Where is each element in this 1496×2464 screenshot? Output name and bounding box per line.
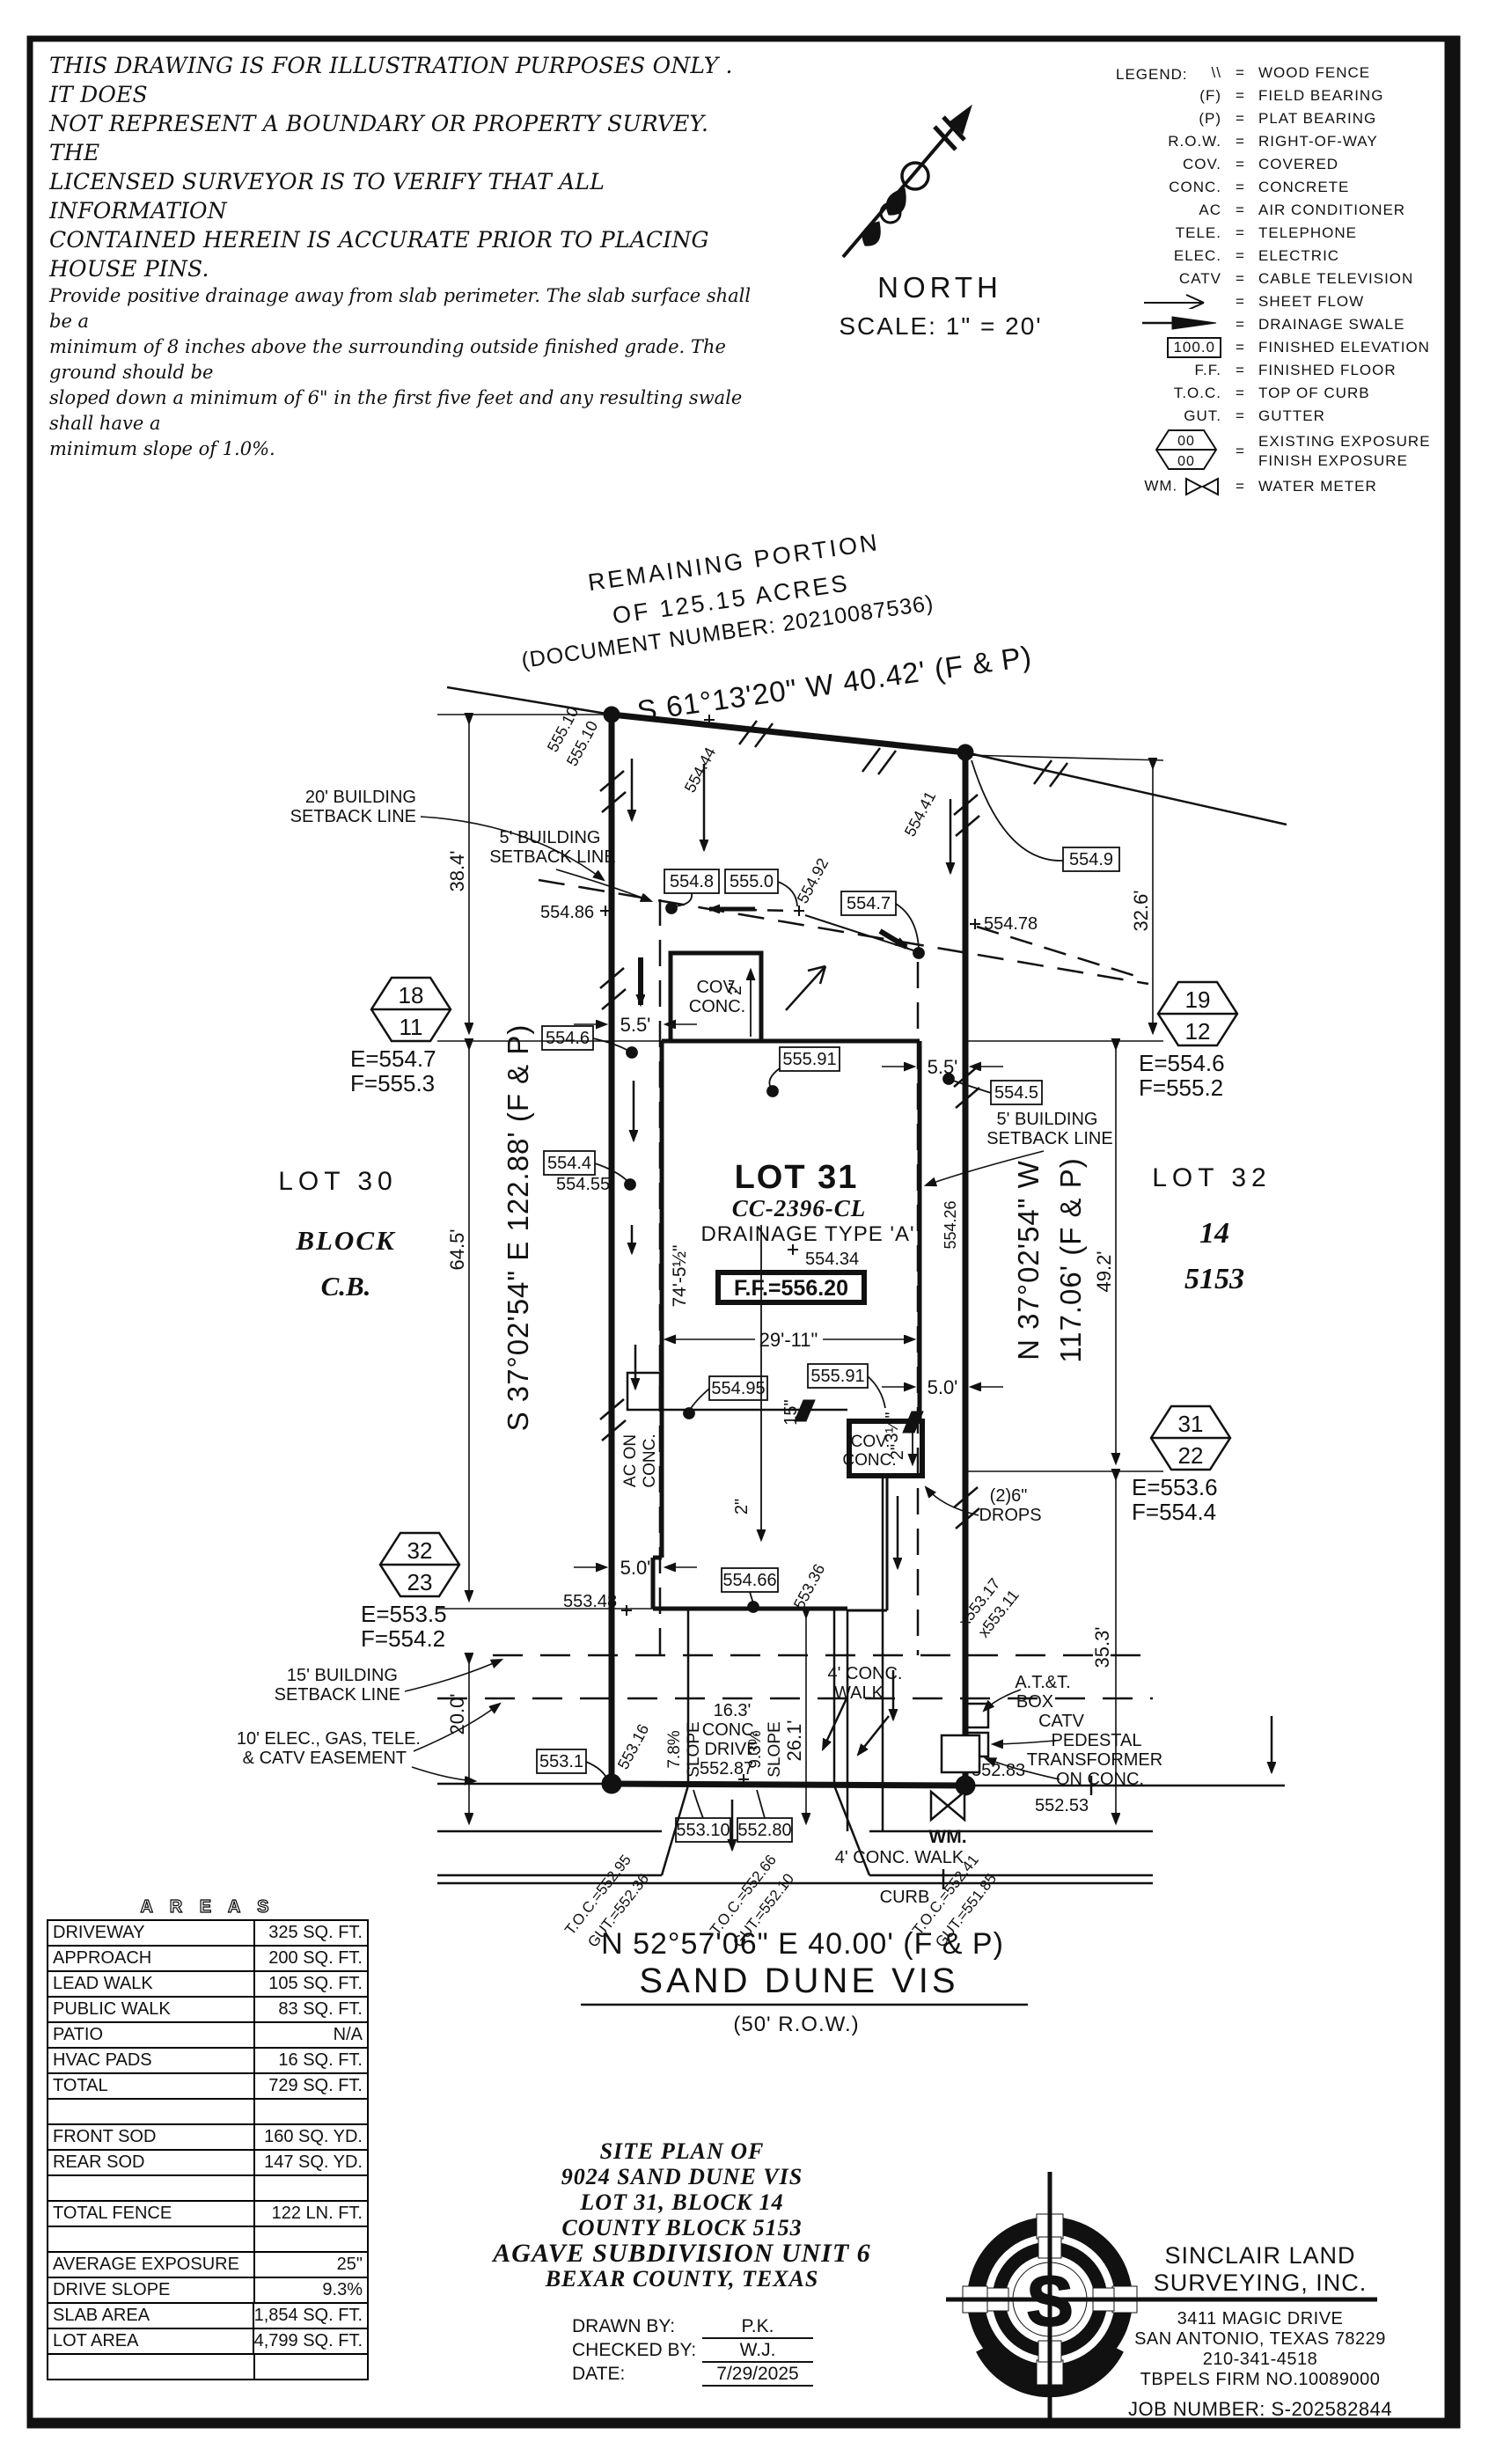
legend-desc: COVERED [1258, 156, 1459, 173]
lot32-cb: 5153 [1184, 1263, 1244, 1295]
ac-on-conc-1: AC ON [621, 1434, 640, 1487]
legend-desc: CABLE TELEVISION [1258, 270, 1459, 288]
easement-line1: 10' ELEC., GAS, TELE. [237, 1729, 421, 1749]
dim-74-5: 74'-5½" [670, 1244, 690, 1307]
drainage-note-line: Provide positive drainage away from slab… [49, 283, 762, 334]
legend-desc: FIELD BEARING [1258, 87, 1459, 105]
lot32-label: LOT 32 [1152, 1163, 1272, 1192]
row-width: (50' R.O.W.) [733, 2013, 859, 2036]
lot31-drainage: DRAINAGE TYPE 'A' [700, 1222, 914, 1246]
company-address: 3411 MAGIC DRIVE [1128, 2309, 1392, 2329]
disclaimer-note: THIS DRAWING IS FOR ILLUSTRATION PURPOSE… [49, 51, 762, 462]
legend-desc: DRAINAGE SWALE [1258, 316, 1459, 334]
cov-conc-rear-1: COV. [696, 978, 737, 997]
company-address: SAN ANTONIO, TEXAS 78229 [1128, 2329, 1392, 2350]
bearing-right-2: 117.06' (F & P) [1054, 1157, 1087, 1362]
hex32-e: E=553.5 [361, 1601, 447, 1627]
hex19-bot: 12 [1185, 1018, 1211, 1045]
spot-553-36: 553.36 [790, 1561, 829, 1612]
hex19-top: 19 [1185, 986, 1211, 1013]
lot30-block: BLOCK [295, 1225, 396, 1256]
table-row: LEAD WALK105 SQ. FT. [47, 1972, 369, 1998]
walk-label-lower: 4' CONC. WALK [835, 1848, 964, 1867]
legend-desc: EXISTING EXPOSURE [1258, 432, 1459, 451]
bearing-right-1: N 37°02'54" W [1012, 1160, 1045, 1360]
table-row: LOT AREA4,799 SQ. FT. [47, 2329, 369, 2355]
exposure-hexagon-icon: 0000 [1111, 426, 1221, 478]
slope-93-word: SLOPE [766, 1721, 784, 1777]
company-phone: 210-341-4518 [1128, 2350, 1392, 2370]
lot30-cb: C.B. [321, 1271, 371, 1302]
slope-78-word: SLOPE [685, 1721, 703, 1777]
legend-desc: GUTTER [1258, 407, 1459, 425]
legend-desc: AIR CONDITIONER [1258, 202, 1459, 219]
slope-78: 7.8% [665, 1730, 684, 1768]
disclaimer-line: THIS DRAWING IS FOR ILLUSTRATION PURPOSE… [49, 51, 762, 109]
areas-title: A R E A S [47, 1897, 369, 1919]
ac-on-conc-2: CONC. [641, 1434, 659, 1487]
legend-symbol: TELE. [1111, 224, 1221, 242]
legend-title: LEGEND: [1116, 66, 1188, 84]
hex32-f: F=554.2 [361, 1625, 445, 1652]
curb-label: CURB [880, 1888, 930, 1907]
hex32-top: 32 [407, 1537, 433, 1564]
dim-5-5-right: 5.5' [928, 1056, 958, 1078]
dim-5-0-right: 5.0' [928, 1376, 958, 1398]
spot-552-53: 552.53 [1035, 1796, 1089, 1815]
dim-49-2: 49.2' [1093, 1250, 1115, 1292]
dim-5-5-left: 5.5' [620, 1014, 651, 1036]
att-box-1: A.T.&T. [1015, 1673, 1070, 1692]
sb20-line2: SETBACK LINE [290, 807, 416, 826]
hex18-f: F=555.3 [350, 1070, 435, 1096]
legend-desc: FINISHED ELEVATION [1258, 339, 1459, 356]
logo-letter: S [1026, 2262, 1073, 2340]
legend-desc: WOOD FENCE [1258, 64, 1459, 82]
finished-floor: F.F.=556.20 [734, 1276, 848, 1301]
lot32-block: 14 [1199, 1217, 1229, 1250]
hex31-top: 31 [1178, 1411, 1204, 1437]
hex19-e: E=554.6 [1139, 1050, 1225, 1076]
svg-text:00: 00 [1177, 434, 1195, 449]
transformer-label: TRANSFORMER [1027, 1750, 1162, 1770]
survey-sheet: NORTH SCALE: 1" = 20' REMAINING PORTION … [0, 0, 1496, 2464]
cov-conc-porch-2: CONC. [842, 1451, 896, 1470]
title-line: 9024 SAND DUNE VIS [475, 2164, 889, 2189]
title-line: AGAVE SUBDIVISION UNIT 6 [475, 2240, 889, 2266]
catv-label: CATV [1038, 1712, 1085, 1731]
hex18-bot: 11 [400, 1014, 423, 1040]
legend-desc: ELECTRIC [1258, 247, 1459, 265]
cov-conc-porch-1: COV. [851, 1433, 891, 1451]
spot-553-48: 553.48 [563, 1592, 617, 1611]
north-arrow-icon: NORTH SCALE: 1" = 20' [839, 106, 1042, 340]
legend-desc: WATER METER [1258, 478, 1459, 495]
el-554-95: 554.95 [711, 1379, 765, 1398]
legend-symbol: (F) [1111, 87, 1221, 105]
spot-554-41: 554.41 [901, 788, 940, 840]
spot-554-26: 554.26 [942, 1200, 959, 1249]
table-row [47, 2227, 369, 2253]
legend-desc: RIGHT-OF-WAY [1258, 133, 1459, 150]
legend-desc: CONCRETE [1258, 179, 1459, 196]
table-row: TOTAL729 SQ. FT. [47, 2074, 369, 2100]
north-label: NORTH [877, 271, 1002, 304]
spot-554-34: 554.34 [805, 1250, 859, 1269]
sb5-right-line1: 5' BUILDING [997, 1110, 1098, 1129]
areas-table: A R E A S DRIVEWAY325 SQ. FT. APPROACH20… [47, 1897, 369, 2380]
drawn-by-block: DRAWN BY:P.K. CHECKED BY:W.J. DATE:7/29/… [572, 2316, 813, 2387]
title-line: BEXAR COUNTY, TEXAS [475, 2266, 889, 2292]
checked-by-label: CHECKED BY: [572, 2340, 702, 2361]
legend-symbol: GUT. [1111, 407, 1221, 425]
lot31-cc: CC-2396-CL [732, 1195, 867, 1221]
remaining-portion-note: REMAINING PORTION OF 125.15 ACRES (DOCUM… [520, 529, 1034, 727]
el-552-80: 552.80 [737, 1821, 791, 1840]
sheet-flow-arrow-icon [1111, 291, 1221, 313]
drawn-by-value: P.K. [702, 2316, 813, 2339]
dim-64-5: 64.5' [446, 1228, 468, 1270]
legend-desc: TELEPHONE [1258, 224, 1459, 242]
hex19-f: F=555.2 [1139, 1074, 1223, 1101]
dim-26-1: 26.1' [783, 1720, 805, 1761]
walk-label-upper-2: WALK [834, 1683, 884, 1703]
spot-552-87: 552.87 [700, 1759, 753, 1778]
spot-554-55: 554.55 [556, 1175, 610, 1194]
legend-symbol: R.O.W. [1111, 133, 1221, 150]
street-name: SAND DUNE VIS [639, 1962, 958, 2000]
checked-by-value: W.J. [702, 2340, 813, 2363]
date-value: 7/29/2025 [702, 2364, 813, 2387]
dim-32-6: 32.6' [1130, 890, 1152, 931]
el-554-7: 554.7 [847, 894, 891, 913]
legend-symbol: F.F. [1111, 362, 1221, 379]
water-meter-icon: WM. [1111, 476, 1221, 497]
spot-554-44: 554.44 [681, 744, 720, 796]
legend-desc: PLAT BEARING [1258, 110, 1459, 128]
dim-29-11: 29'-11" [759, 1329, 818, 1351]
el-554-4: 554.4 [547, 1154, 591, 1173]
legend-symbol: (P) [1111, 110, 1221, 128]
legend-symbol: CATV [1111, 270, 1221, 288]
table-row: REAR SOD147 SQ. YD. [47, 2151, 369, 2176]
title-line: COUNTY BLOCK 5153 [475, 2215, 889, 2240]
table-row: DRIVEWAY325 SQ. FT. [47, 1919, 369, 1947]
el-554-8: 554.8 [670, 872, 714, 891]
job-number: JOB NUMBER: S-202582844 [1128, 2398, 1392, 2421]
table-row [47, 2176, 369, 2202]
table-row: PUBLIC WALK83 SQ. FT. [47, 1998, 369, 2023]
drive-1: 16.3' [714, 1701, 752, 1720]
on-conc-label: ON CONC. [1056, 1770, 1144, 1789]
sb15-line1: 15' BUILDING [287, 1666, 398, 1685]
sb5-left-line1: 5' BUILDING [500, 828, 601, 847]
legend-desc: SHEET FLOW [1258, 293, 1459, 311]
spot-553-16: 553.16 [614, 1721, 653, 1772]
el-554-66: 554.66 [722, 1571, 776, 1590]
easement-line2: & CATV EASEMENT [243, 1749, 407, 1768]
disclaimer-line: NOT REPRESENT A BOUNDARY OR PROPERTY SUR… [49, 109, 762, 167]
scale-label: SCALE: 1" = 20' [839, 312, 1042, 340]
el-553-10: 553.10 [676, 1821, 730, 1840]
bearing-left: S 37°02'54" E 122.88' (F & P) [502, 1024, 534, 1432]
lot-labels: LOT 30 BLOCK C.B. LOT 31 CC-2396-CL DRAI… [278, 1159, 1272, 1302]
title-line: SITE PLAN OF [475, 2138, 889, 2164]
hex32-bot: 23 [407, 1569, 433, 1595]
table-row [47, 2100, 369, 2125]
spot-554-78: 554.78 [984, 914, 1038, 934]
hex18-e: E=554.7 [350, 1045, 436, 1072]
date-label: DATE: [572, 2364, 702, 2385]
hex18-top: 18 [399, 982, 424, 1008]
table-row: HVAC PADS16 SQ. FT. [47, 2049, 369, 2074]
finished-elevation-symbol: 100.0 [1167, 337, 1221, 358]
drops-1: (2)6" [990, 1486, 1028, 1506]
cov-conc-rear-2: CONC. [689, 997, 745, 1016]
dim-20-0: 20.0' [446, 1693, 468, 1734]
pedestal-label: PEDESTAL [1052, 1731, 1142, 1750]
disclaimer-line: LICENSED SURVEYOR IS TO VERIFY THAT ALL … [49, 167, 762, 225]
company-name: SURVEYING, INC. [1128, 2270, 1392, 2297]
title-block: SITE PLAN OF 9024 SAND DUNE VIS LOT 31, … [475, 2138, 889, 2292]
exposure-hexagons: 18 11 E=554.7 F=555.3 19 12 E=554.6 F=55… [350, 978, 1237, 1652]
water-meter-label: WM. [928, 1827, 966, 1847]
table-row: APPROACH200 SQ. FT. [47, 1947, 369, 1972]
lot31-label: LOT 31 [735, 1159, 859, 1196]
drainage-note-line: sloped down a minimum of 6" in the first… [49, 385, 762, 436]
table-row: DRIVE SLOPE9.3% [47, 2278, 369, 2304]
sb20-line1: 20' BUILDING [305, 788, 416, 807]
el-554-6: 554.6 [546, 1029, 590, 1048]
table-row: TOTAL FENCE122 LN. FT. [47, 2202, 369, 2227]
legend-symbol: COV. [1111, 156, 1221, 173]
legend-desc: TOP OF CURB [1258, 385, 1459, 402]
drainage-swale-arrow-icon [1111, 315, 1221, 335]
spot-554-86: 554.86 [540, 903, 594, 922]
slope-93: 9.3% [746, 1730, 765, 1768]
table-row [47, 2355, 369, 2380]
table-row: FRONT SOD160 SQ. YD. [47, 2125, 369, 2151]
drainage-note-line: minimum of 8 inches above the surroundin… [49, 334, 762, 385]
drainage-note-line: minimum slope of 1.0%. [49, 436, 762, 462]
legend-symbol: ELEC. [1111, 247, 1221, 265]
bearing-top: S 61°13'20" W 40.42' (F & P) [635, 640, 1034, 728]
walk-label-upper-1: 4' CONC. [828, 1664, 903, 1683]
el-555-0: 555.0 [730, 872, 774, 891]
el-554-5: 554.5 [994, 1083, 1038, 1103]
spot-554-92: 554.92 [794, 855, 832, 906]
legend-symbol: T.O.C. [1111, 385, 1221, 402]
sb5-right-line2: SETBACK LINE [986, 1129, 1112, 1148]
company-name: SINCLAIR LAND [1128, 2242, 1392, 2270]
hex31-e: E=553.6 [1132, 1474, 1218, 1500]
legend-desc: FINISHED FLOOR [1258, 362, 1459, 379]
disclaimer-line: CONTAINED HEREIN IS ACCURATE PRIOR TO PL… [49, 225, 762, 283]
table-row: PATION/A [47, 2023, 369, 2049]
dim-15in: 15" [781, 1399, 801, 1425]
legend: LEGEND: \\=WOOD FENCE (F)=FIELD BEARING … [1111, 62, 1459, 498]
table-row: SLAB AREA1,854 SQ. FT. [47, 2304, 369, 2329]
legend-symbol: CONC. [1111, 179, 1221, 196]
att-box-2: BOX [1016, 1692, 1053, 1712]
svg-text:00: 00 [1177, 454, 1195, 469]
company-firm: TBPELS FIRM NO.10089000 [1128, 2370, 1392, 2390]
sb15-line2: SETBACK LINE [275, 1685, 400, 1705]
dim-38-4: 38.4' [446, 850, 468, 891]
dim-35-3: 35.3' [1091, 1626, 1113, 1668]
dim-2in-mid: 2" [732, 1499, 752, 1514]
el-554-9: 554.9 [1069, 850, 1113, 869]
drops-2: DROPS [979, 1506, 1041, 1525]
hex31-f: F=554.4 [1132, 1499, 1216, 1525]
drawn-by-label: DRAWN BY: [572, 2316, 702, 2337]
hex31-bot: 22 [1178, 1442, 1204, 1469]
lot30-label: LOT 30 [278, 1167, 398, 1196]
el-553-1: 553.1 [539, 1752, 583, 1771]
legend-symbol: AC [1111, 202, 1221, 219]
title-line: LOT 31, BLOCK 14 [475, 2189, 889, 2215]
company-block: SINCLAIR LAND SURVEYING, INC. 3411 MAGIC… [1128, 2242, 1392, 2421]
dim-5-0-left: 5.0' [620, 1557, 651, 1579]
el-555-91-front: 555.91 [810, 1367, 864, 1386]
el-555-91-rear: 555.91 [782, 1050, 836, 1069]
sb5-left-line2: SETBACK LINE [489, 847, 615, 867]
table-row: AVERAGE EXPOSURE25" [47, 2253, 369, 2278]
legend-desc: FINISH EXPOSURE [1258, 451, 1459, 471]
